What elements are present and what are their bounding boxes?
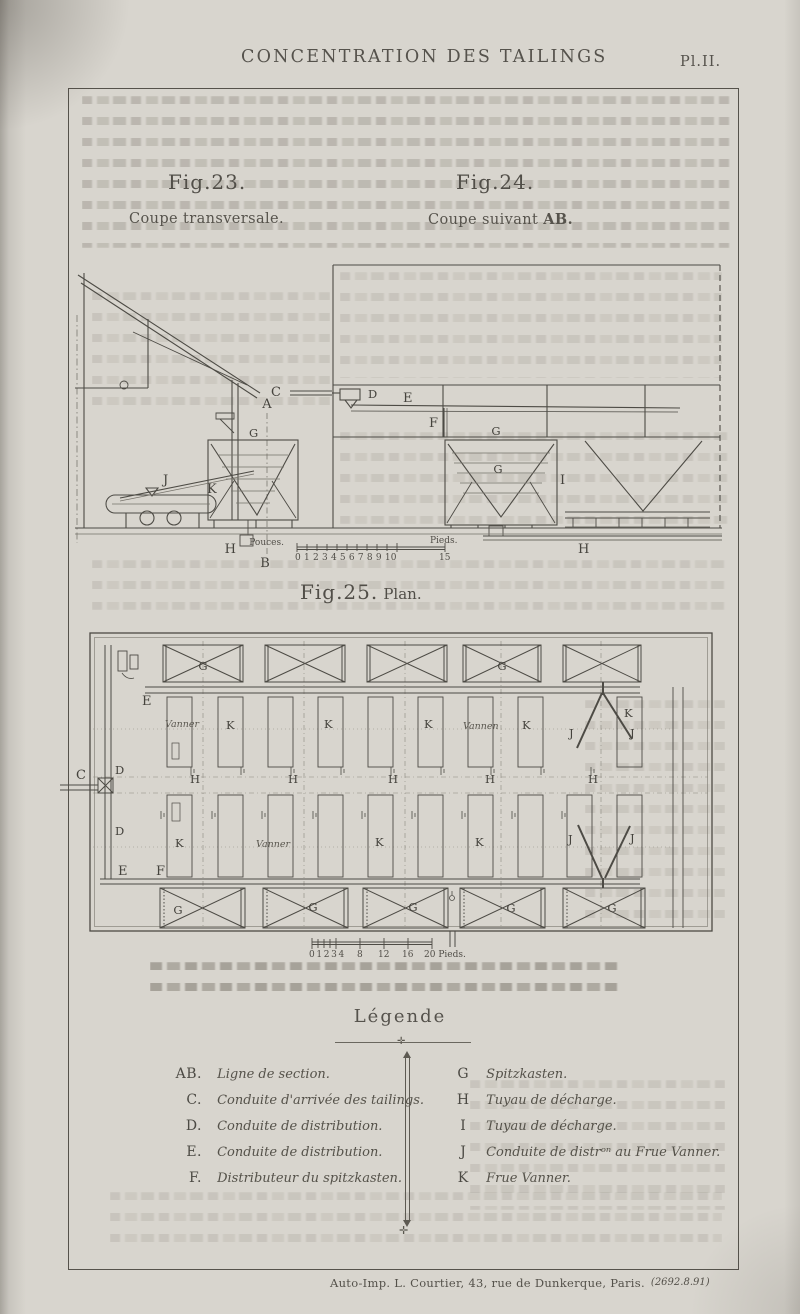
fig23-number: Fig.23. [168,170,246,194]
plan-border [90,633,712,931]
label-j-upper-left: J [568,726,574,740]
fig23-caption: Coupe transversale. [129,211,284,227]
scale25-n8: 8 [357,950,363,960]
label-k-lower-1: K [175,836,184,850]
label-h-plan-2: H [288,772,298,786]
label-e-plan-bottom: E [118,864,128,879]
fig25-caption: Plan. [383,585,421,603]
label-g-fig23: G [249,426,258,440]
plan-spitzkasten-row-top [163,645,641,682]
scanned-plate-page: CONCENTRATION DES TAILINGS Pl.II. Fig.23… [0,0,800,1314]
label-h-plan-4: H [485,772,495,786]
legend-key: I [455,1118,471,1134]
scale25-n12: 12 [378,950,389,960]
label-f-plan: F [156,864,165,879]
legend-desc: Ligne de section. [217,1067,330,1082]
ground-lines [75,528,722,534]
legend-key: AB. [160,1066,202,1082]
label-vanner-lower: Vanner [256,839,292,850]
scale25-n0: 0 1 2 3 4 [309,950,345,960]
label-g-upper-fig24: G [491,424,500,438]
label-k-lower-2: K [375,835,384,849]
label-c-fig23: C [271,385,281,400]
scale25-n20: 20 Pieds. [424,950,466,960]
imprint-reference: (2692.8.91) [651,1277,710,1288]
legend-end-ornament: ✛ [399,1224,408,1237]
label-b: B [260,556,270,571]
label-k-upper-4: K [522,718,531,732]
label-k-fig23: K [207,482,217,497]
legend-key: G [455,1066,471,1082]
label-g-box-bottom-1: G [173,903,182,917]
label-h-plan-1: H [190,772,200,786]
label-d-plan-upper: D [115,763,124,777]
legend-row-g: G Spitzkasten. [455,1063,567,1082]
legend-divider-ornament [405,1058,410,1220]
legend-row-j: J Conduite de distrᵒⁿ au Frue Vanner. [455,1141,720,1160]
label-h-fig23: H [225,542,236,557]
fig24-caption: Coupe suivant AB. [428,211,573,228]
scale-pouces-numbers: 0 1 2 3 4 5 6 7 8 9 10 [295,553,397,563]
legend-key: K [455,1170,471,1186]
label-k-upper-1: K [226,718,235,732]
label-g-box-top-1: G [198,659,207,673]
legend-row-f: F. Distributeur du spitzkasten. [160,1167,402,1186]
fig24-number: Fig.24. [456,170,534,194]
legend-desc: Frue Vanner. [486,1171,571,1186]
fig24-caption-section-ref: AB. [543,211,573,228]
label-k-upper-5: K [624,706,633,720]
label-e-plan-top: E [142,694,152,709]
label-j-fig23: J [161,473,168,488]
label-j-upper-right: J [629,726,635,740]
legend-row-d: D. Conduite de distribution. [160,1115,382,1134]
label-f-fig24: F [429,416,438,431]
label-g-box-bottom-2: G [308,900,317,914]
label-g-box-top-4: G [497,659,506,673]
legend-desc: Conduite d'arrivée des tailings. [217,1093,424,1108]
label-h-fig24: H [578,542,589,557]
legend-key: D. [160,1118,202,1134]
legend-key: E. [160,1144,202,1160]
label-c-plan: C [76,768,86,783]
fig24-linework [332,265,722,540]
label-i-fig24: I [560,473,565,488]
plan-conduits [60,645,640,884]
label-e-fig24: E [403,391,413,406]
fig25-scale-bar: 0 1 2 3 4 8 12 16 20 Pieds. [309,938,466,960]
label-j-lower-left: J [567,832,573,846]
label-g-box-bottom-5: G [607,901,616,915]
legend-desc: Distributeur du spitzkasten. [217,1171,402,1186]
legend-desc: Spitzkasten. [486,1067,567,1082]
label-vannen-upper: Vannen [463,721,499,732]
fig25-plan-drawing: C D D E E F G G Vanner K K K Vannen K J … [58,625,718,960]
label-a: A [261,397,272,412]
label-k-upper-3: K [424,717,433,731]
legend-desc: Conduite de distribution. [217,1119,382,1134]
fig23-linework [75,273,332,555]
fig24-caption-text: Coupe suivant [428,212,543,228]
legend-key: H [455,1092,471,1108]
label-g-box-bottom-3: G [408,900,417,914]
scale25-n16: 16 [402,950,414,960]
scale-pieds-number: 15 [439,553,451,563]
fig23-fig24-sections-drawing: Pouces. 0 1 2 3 4 5 6 7 8 9 10 Pieds. 15… [68,255,738,570]
label-k-lower-3: K [475,835,484,849]
legend-row-h: H Tuyau de décharge. [455,1089,617,1108]
imprint-text: Auto-Imp. L. Courtier, 43, rue de Dunker… [330,1276,645,1290]
printer-imprint: Auto-Imp. L. Courtier, 43, rue de Dunker… [330,1276,710,1290]
fig23-scale-bar: Pouces. 0 1 2 3 4 5 6 7 8 9 10 Pieds. 15 [249,536,457,563]
legend-key: J [455,1144,471,1160]
label-d-fig24: D [368,387,377,401]
legend-key: F. [160,1170,202,1186]
label-g-inner-fig24: G [493,462,502,476]
label-g-box-bottom-4: G [506,901,515,915]
legend-desc: Tuyau de décharge. [486,1119,617,1134]
fig25-heading: Fig.25. Plan. [300,580,422,604]
legend-row-k: K Frue Vanner. [455,1167,571,1186]
legend-row-c: C. Conduite d'arrivée des tailings. [160,1089,424,1108]
legend-desc: Conduite de distrᵒⁿ au Frue Vanner. [486,1145,720,1160]
plan-spitzkasten-row-bottom [160,687,683,947]
label-h-plan-3: H [388,772,398,786]
legend-rule-ornament: ✛ [335,1042,471,1043]
legend-row-ab: AB. Ligne de section. [160,1063,330,1082]
scale-pieds-unit: Pieds. [430,536,458,546]
label-vanner-upper: Vanner [165,719,201,730]
scale-pouces-unit: Pouces. [249,538,284,548]
plate-title: CONCENTRATION DES TAILINGS [241,47,608,67]
legend-row-e: E. Conduite de distribution. [160,1141,382,1160]
legend-row-i: I Tuyau de décharge. [455,1115,617,1134]
label-j-lower-right: J [629,831,635,845]
legend-title: Légende [0,1006,800,1027]
label-k-upper-2: K [324,717,333,731]
fig25-number: Fig.25. [300,580,378,604]
legend-desc: Conduite de distribution. [217,1145,382,1160]
label-d-plan-lower: D [115,824,124,838]
plate-number: Pl.II. [680,54,721,70]
legend-desc: Tuyau de décharge. [486,1093,617,1108]
legend-key: C. [160,1092,202,1108]
label-h-plan-5: H [588,772,598,786]
